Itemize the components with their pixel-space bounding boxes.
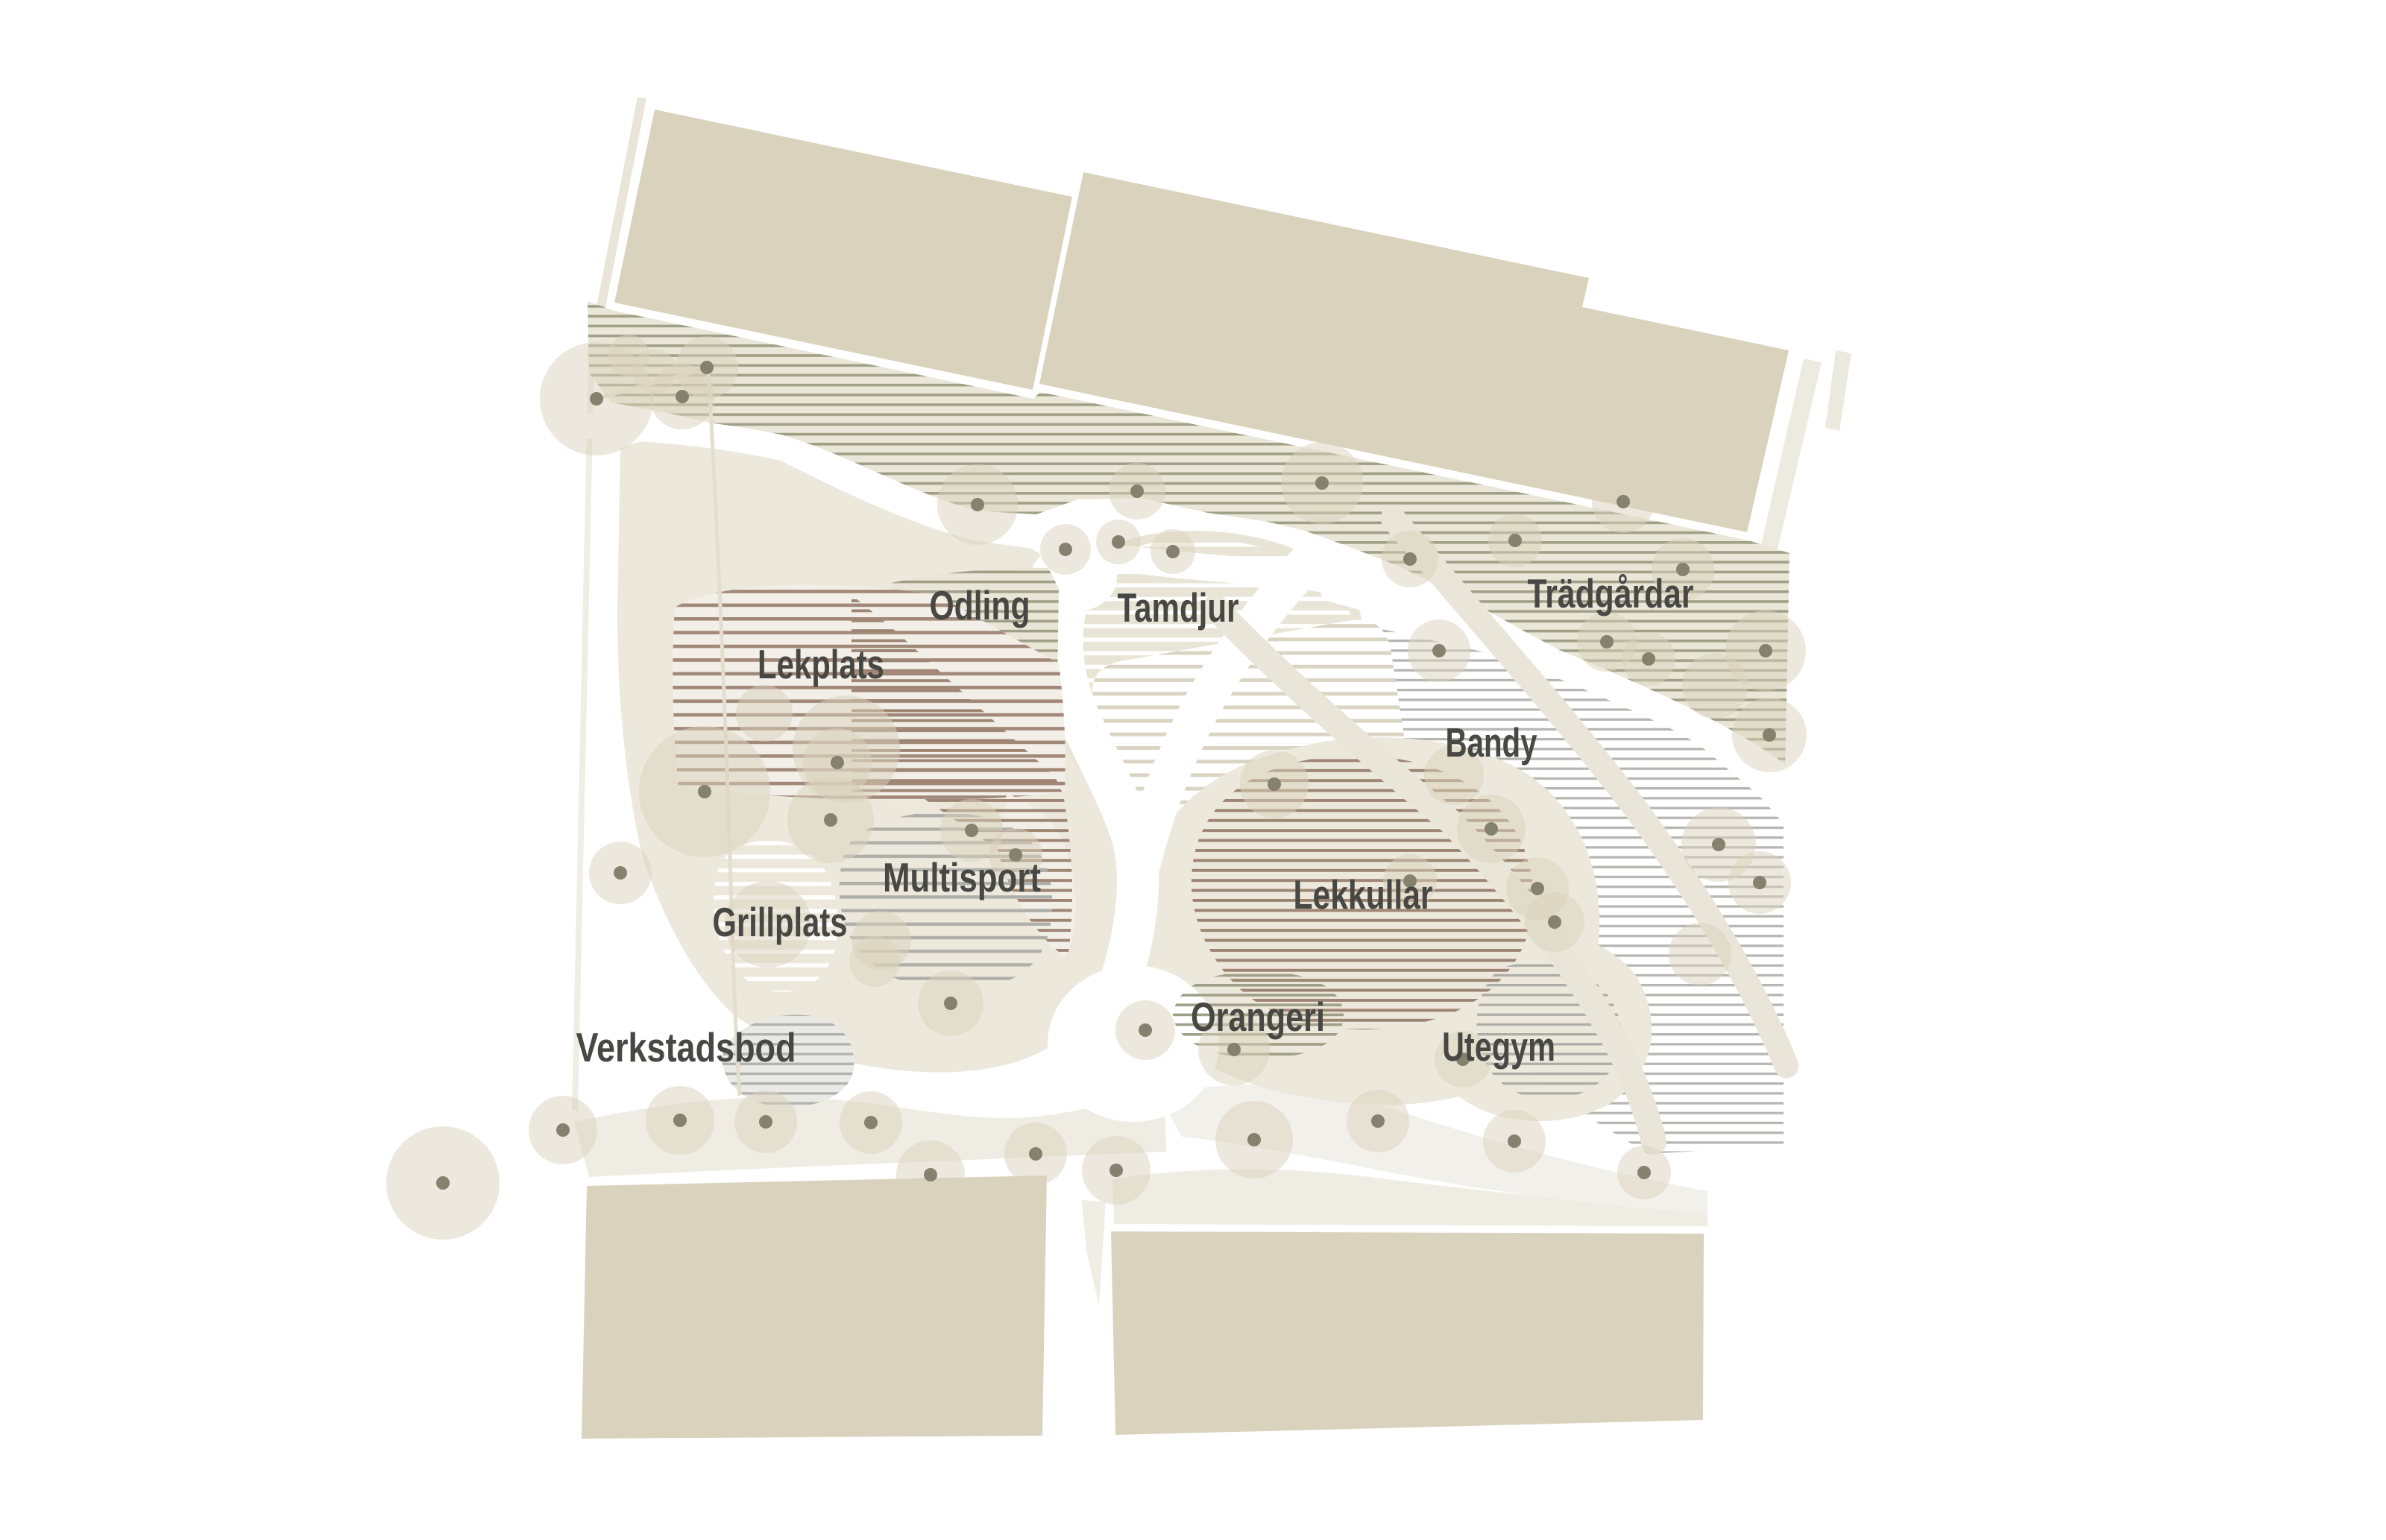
svg-text:Multisport: Multisport bbox=[883, 854, 1041, 900]
svg-text:Trädgårdar: Trädgårdar bbox=[1528, 570, 1694, 616]
svg-text:Lekkullar: Lekkullar bbox=[1294, 871, 1433, 918]
svg-text:Lekplats: Lekplats bbox=[758, 641, 884, 687]
svg-text:Verkstadsbod: Verkstadsbod bbox=[576, 1024, 796, 1070]
svg-text:Grillplats: Grillplats bbox=[713, 899, 848, 945]
svg-text:Tamdjur: Tamdjur bbox=[1118, 584, 1239, 631]
svg-text:Orangeri: Orangeri bbox=[1191, 994, 1325, 1040]
svg-text:Utegym: Utegym bbox=[1442, 1023, 1555, 1070]
svg-text:Odling: Odling bbox=[930, 582, 1030, 628]
svg-text:Bandy: Bandy bbox=[1446, 719, 1537, 766]
